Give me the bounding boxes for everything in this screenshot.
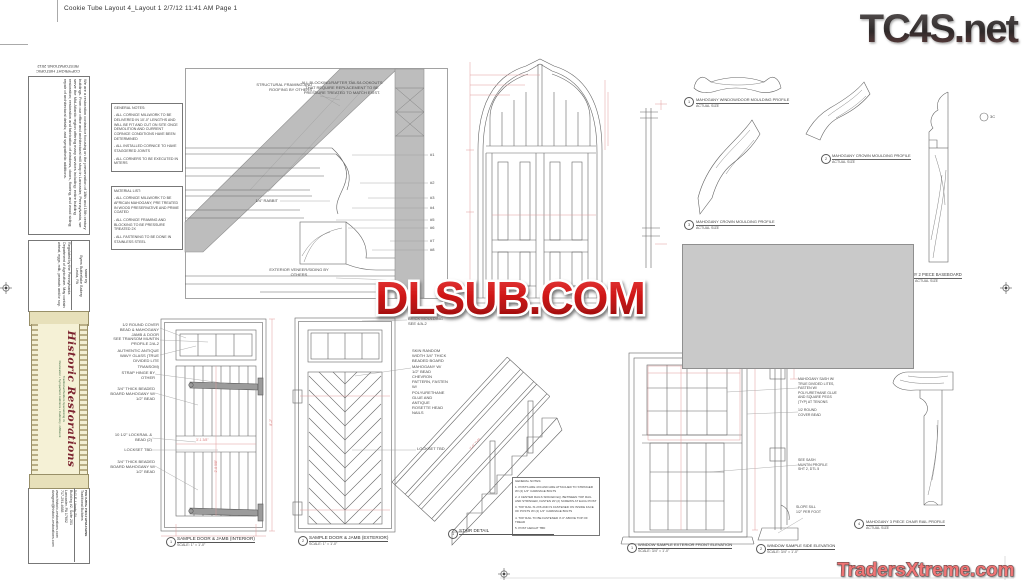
stair-caption-bubble: 1 [448, 529, 458, 539]
window-front-bubble: 1 [627, 543, 637, 553]
window-side-caption-scale: SCALE: 3/4" = 1'-0" [767, 550, 835, 554]
baseboard-sub: ACTUAL SIZE [915, 279, 962, 283]
page-header: Cookie Tube Layout 4_Layout 1 2/7/12 11:… [64, 5, 237, 12]
profile3-bubble: 3 [684, 220, 694, 230]
profile3-sub: ACTUAL SIZE [696, 226, 775, 230]
tube-about: We are a restoration contractor focusing… [29, 78, 87, 230]
cornice-callout: #5 [430, 217, 434, 222]
registration-mark-icon [498, 567, 510, 585]
cornice-callout: #4 [430, 205, 434, 210]
profile1-sub: ACTUAL SIZE [696, 104, 789, 108]
door2-lockset-callout: LOCKSET TBD [417, 446, 447, 451]
dlsub-text: DLSUB.COM [375, 272, 645, 324]
window-side-caption-text: WINDOW SAMPLE SIDE ELEVATION [767, 543, 835, 550]
cornice-exterior-note: EXTERIOR VENEER/SIDING BY OTHERS [262, 267, 336, 277]
registration-mark-icon [0, 281, 12, 299]
contact-email: dwagner@historic-restorations.com [50, 490, 54, 561]
window-side-caption: WINDOW SAMPLE SIDE ELEVATION SCALE: 3/4"… [767, 543, 835, 554]
profile3-label: MAHOGANY CROWN MOULDING PROFILE ACTUAL S… [696, 219, 775, 230]
cornice-callout: #8 [430, 247, 434, 252]
tube-contact-divider [74, 488, 75, 562]
door1-dim-inner: 2'-8 5/8" [214, 460, 218, 472]
regulated-text: Regulated by the Pennsylvania Department… [57, 242, 71, 309]
door1-dim-width: 3'-1 3/8" [196, 438, 208, 442]
banner-brand: Historic Restorations Traditional Builde… [40, 328, 77, 470]
banner-capital-bottom [29, 474, 89, 489]
traders-watermark: TradersXtreme.com [830, 556, 1020, 584]
baseboard-marker: 3C [990, 114, 995, 119]
contact-tagline: Traditional Builders [79, 490, 83, 561]
profile1-bubble: 1 [684, 97, 694, 107]
banner-dentil-right [79, 324, 88, 474]
chair-rail-bubble: 4 [854, 519, 864, 529]
tube-bakery: Made by Byers Butterflake Bakery Leola, … [29, 241, 87, 309]
stair-note: 3. TOP RAIL IS 2X6 AND IS FASTENED ON IN… [515, 506, 597, 514]
cornice-callout: #7 [430, 238, 434, 243]
registration-mark-icon [1000, 281, 1012, 299]
door1-callout: 10 1/2" LOCKRAIL & BEAD (2) [104, 432, 152, 442]
brand-title: Historic Restorations [65, 328, 77, 470]
made-by: Made by [83, 242, 87, 309]
door2-caption: SAMPLE DOOR & JAMB (EXTERIOR) SCALE: 1" … [309, 535, 388, 546]
general-note: - ALL CORNICE MILLWORK TO BE DELIVERED I… [114, 113, 180, 142]
brand-subtitle2: Restoration • Sympathetic Additions • Ca… [57, 328, 61, 470]
cornice-callout: #6 [430, 225, 434, 230]
profile2-label: MAHOGANY CROWN MOULDING PROFILE ACTUAL S… [832, 153, 911, 164]
door1-caption-bubble: 1 [166, 537, 176, 547]
contact-phone: 717-291-4688 [59, 490, 63, 561]
door1-caption-scale: SCALE: 1" = 1'-0" [177, 543, 255, 547]
window-side-bubble: 2 [756, 544, 766, 554]
material-item: - ALL FASTENING TO BE DONE IN STAINLESS … [114, 235, 180, 245]
profile1-label: MAHOGANY WINDOW/DOOR MOULDING PROFILE AC… [696, 97, 789, 108]
contact-address3: Lancaster, PA 17602 [64, 490, 68, 561]
tube-bakery-divider [71, 240, 72, 310]
door2-caption-scale: SCALE: 1" = 1'-0" [309, 542, 388, 546]
cornice-callout: #2 [430, 180, 434, 185]
bakery-name: Byers Butterflake Bakery [79, 242, 84, 309]
cornice-structural-note: STRUCTURAL FRAMING AND ROOFING BY OTHERS [250, 82, 312, 92]
window-sash-callout: MAHOGANY SASH W/ TRUE DIVIDED LITES, FAS… [798, 377, 840, 404]
contact-name: HISTORIC RESTORATIONS [84, 490, 87, 561]
stair-note: 1. POSTS ARE 4X4 AND ARE ATTACHED TO STR… [515, 486, 597, 494]
cornice-rabbit-note: 1/4" RABBIT [244, 198, 278, 203]
tube-about-text: We are a restoration contractor focusing… [29, 78, 87, 230]
window-front-caption-text: WINDOW SAMPLE EXTERIOR FRONT ELEVATION [638, 542, 732, 549]
stair-note: 2. 2 CENTER RAILS SPACED EQ. BETWEEN TOP… [515, 496, 597, 504]
general-notes-title: GENERAL NOTES: [114, 106, 180, 111]
material-item: - ALL CORNICE MILLWORK TO BE AFRICAN MAH… [114, 196, 180, 215]
cornice-general-notes: GENERAL NOTES: - ALL CORNICE MILLWORK TO… [111, 103, 183, 172]
stair-caption: STAIR DETAIL [459, 528, 554, 535]
window-bead-callout: 1/2 ROUND COVER BEAD [798, 408, 826, 417]
chair-rail-sub: ACTUAL SIZE [866, 526, 945, 530]
drawing-sheet: Cookie Tube Layout 4_Layout 1 2/7/12 11:… [0, 0, 1024, 587]
tc4s-text: TC4S.net [860, 7, 1019, 51]
stair-note: 4. TOP RAIL TO BE FASTENED 3'-0" ABOVE T… [515, 517, 597, 525]
chair-rail-label: MAHOGANY 3 PIECE CHAIR RAIL PROFILE ACTU… [866, 519, 945, 530]
cornice-material-list: MATERIAL LIST: - ALL CORNICE MILLWORK TO… [111, 186, 183, 250]
door1-caption: SAMPLE DOOR & JAMB (INTERIOR) SCALE: 1" … [177, 536, 255, 547]
door2-caption-bubble: 2 [298, 536, 308, 546]
contact-website: www.historic-restorations.com [55, 490, 59, 561]
door1-callout: SEE TRANSOM MUNTIN PROFILE 2/A-2 [111, 336, 159, 346]
traders-text: TradersXtreme.com [837, 560, 1015, 581]
door2-skin-callout: SKIN RANDOM WIDTH 3/4" THICK BEADED BOAR… [412, 348, 448, 415]
door1-callout: LOCKSET TBD [104, 447, 152, 452]
door1-callout: AUTHENTIC ANTIQUE WAVY GLASS (TRUE DIVID… [111, 348, 159, 369]
window-muntin-callout: SEE SASH MUNTIN PROFILE SHT 2, DTL 5 [798, 458, 830, 472]
cornice-callout: #3 [430, 195, 434, 200]
tc4s-logo: TC4S.net [812, 1, 1022, 53]
profile2-bubble: 2 [821, 154, 831, 164]
window-front-caption: WINDOW SAMPLE EXTERIOR FRONT ELEVATION S… [638, 542, 732, 553]
bakery-city: Leola, PA [74, 242, 79, 309]
door1-callout: STRAP HINGE BY OTHER [107, 370, 155, 380]
door1-callout: 3/4" THICK BEADED BOARD MAHOGANY W/ 1/2"… [107, 386, 155, 402]
stair-notes-title: GENERAL NOTES: [515, 480, 597, 484]
tube-copyright: COPYRIGHT HISTORIC RESTORATIONS 2012 [28, 57, 88, 74]
cornice-callout: #1 [430, 152, 434, 157]
general-note: - ALL INSTALLED CORNICE TO HAVE STAGGERE… [114, 144, 180, 154]
door1-dim-height: 8'-2" [269, 419, 273, 426]
profile2-sub: ACTUAL SIZE [832, 160, 911, 164]
copyright-line1: COPYRIGHT HISTORIC [28, 69, 88, 74]
window-front-caption-scale: SCALE: 3/4" = 1'-0" [638, 549, 732, 553]
material-item: - ALL CORNICE FRAMING AND BLOCKING TO BE… [114, 218, 180, 233]
redacted-block [682, 244, 914, 369]
contact-address2: Building #2, Suite 201 [68, 490, 72, 561]
stair-caption-text: STAIR DETAIL [459, 528, 554, 535]
window-sill-callout: SLOPE SILL 1/2" PER FOOT [796, 505, 822, 514]
general-note: - ALL CORNERS TO BE EXECUTED IN MITERS [114, 157, 180, 167]
door1-caption-text: SAMPLE DOOR & JAMB (INTERIOR) [177, 536, 255, 543]
tube-contact: HISTORIC RESTORATIONS Traditional Builde… [29, 489, 87, 561]
dlsub-watermark: DLSUB.COM [360, 268, 660, 330]
door2-caption-text: SAMPLE DOOR & JAMB (EXTERIOR) [309, 535, 388, 542]
material-list-title: MATERIAL LIST: [114, 189, 180, 194]
door1-callout: 3/4" THICK BEADED BOARD MAHOGANY W/ 1/2"… [107, 459, 155, 475]
